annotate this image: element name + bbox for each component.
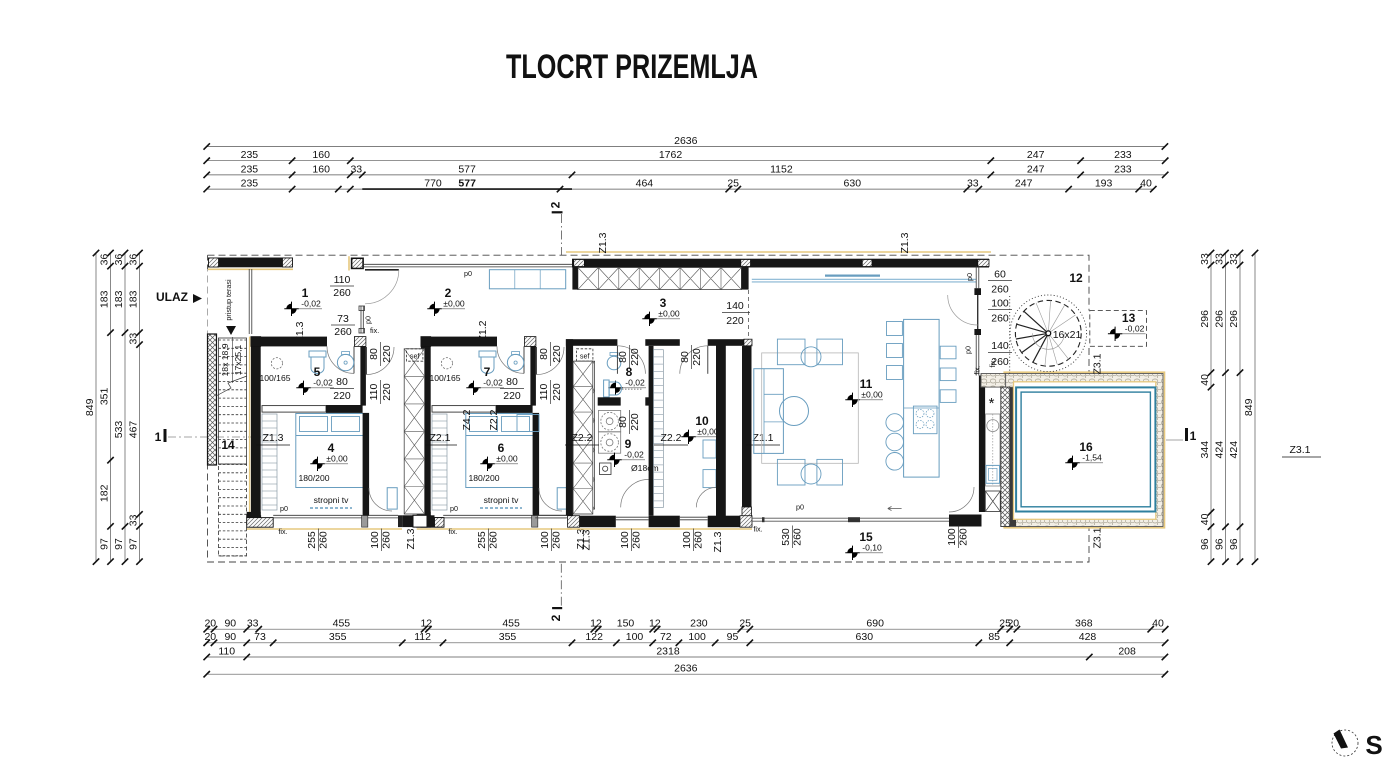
svg-text:80: 80 [617, 351, 629, 363]
svg-text:100/165: 100/165 [259, 373, 290, 383]
svg-text:80: 80 [506, 376, 518, 388]
svg-text:220: 220 [381, 383, 393, 401]
svg-text:110: 110 [538, 383, 550, 400]
svg-text:533: 533 [113, 421, 125, 439]
svg-text:Z1.3: Z1.3 [405, 528, 417, 549]
svg-text:S: S [1365, 730, 1382, 760]
svg-text:577: 577 [458, 163, 476, 175]
svg-text:Z1.1: Z1.1 [752, 432, 773, 444]
svg-text:Z3.1: Z3.1 [1289, 444, 1310, 456]
svg-text:467: 467 [128, 421, 140, 439]
svg-text:stropni tv: stropni tv [314, 495, 350, 505]
svg-text:183: 183 [128, 290, 140, 308]
svg-text:Z1.3: Z1.3 [899, 232, 911, 253]
svg-text:fix.: fix. [973, 365, 982, 374]
svg-text:90: 90 [224, 618, 236, 630]
svg-text:455: 455 [333, 618, 351, 630]
svg-text:140: 140 [726, 300, 744, 312]
svg-text:464: 464 [636, 178, 654, 190]
svg-text:33: 33 [350, 163, 362, 175]
svg-text:12: 12 [590, 618, 602, 630]
svg-text:424: 424 [1214, 441, 1226, 459]
svg-text:72: 72 [660, 631, 672, 643]
svg-text:690: 690 [866, 618, 884, 630]
svg-text:160: 160 [312, 163, 330, 175]
svg-text:95: 95 [727, 631, 739, 643]
svg-text:20: 20 [1007, 618, 1019, 630]
svg-text:100: 100 [369, 531, 381, 549]
svg-text:stropni tv: stropni tv [484, 495, 520, 505]
svg-text:260: 260 [631, 531, 643, 549]
svg-text:36: 36 [99, 254, 111, 266]
svg-text:260: 260 [318, 531, 330, 549]
svg-text:80: 80 [679, 351, 691, 363]
svg-text:-0,02: -0,02 [313, 378, 333, 388]
svg-text:40: 40 [1199, 374, 1211, 386]
svg-text:fix.: fix. [753, 525, 762, 534]
svg-text:100: 100 [626, 631, 644, 643]
svg-text:-0,02: -0,02 [301, 299, 321, 309]
svg-text:112: 112 [414, 631, 431, 643]
svg-text:2: 2 [549, 614, 563, 621]
svg-text:80: 80 [336, 376, 348, 388]
svg-text:100: 100 [991, 298, 1009, 310]
svg-text:20: 20 [204, 631, 216, 643]
svg-text:260: 260 [958, 528, 970, 546]
svg-text:97: 97 [128, 538, 140, 550]
svg-text:12: 12 [420, 618, 432, 630]
svg-text:p0: p0 [464, 269, 472, 278]
svg-text:Z2.2: Z2.2 [660, 432, 681, 444]
svg-text:20: 20 [204, 618, 216, 630]
svg-text:33: 33 [1199, 253, 1211, 265]
svg-text:12: 12 [649, 618, 661, 630]
svg-text:260: 260 [991, 313, 1009, 325]
svg-text:40: 40 [1152, 618, 1164, 630]
svg-text:296: 296 [1199, 310, 1211, 328]
svg-text:344: 344 [1199, 441, 1211, 459]
svg-text:247: 247 [1027, 163, 1045, 175]
svg-text:-0,10: -0,10 [862, 543, 882, 553]
svg-text:33: 33 [1214, 253, 1226, 265]
svg-text:849: 849 [84, 398, 96, 416]
svg-text:260: 260 [333, 287, 351, 299]
svg-text:1762: 1762 [659, 149, 683, 161]
svg-text:220: 220 [551, 383, 563, 401]
svg-text:±0,00: ±0,00 [496, 454, 518, 464]
svg-text:90: 90 [224, 631, 236, 643]
svg-text:12: 12 [1069, 271, 1083, 285]
svg-text:97: 97 [99, 538, 111, 550]
svg-text:530: 530 [780, 528, 792, 546]
svg-text:260: 260 [792, 528, 804, 546]
svg-text:-0,02: -0,02 [624, 450, 644, 460]
svg-text:455: 455 [502, 618, 520, 630]
svg-text:±0,00: ±0,00 [443, 299, 465, 309]
svg-text:235: 235 [241, 178, 259, 190]
svg-text:-1,54: -1,54 [1082, 453, 1102, 463]
svg-text:260: 260 [693, 531, 705, 549]
svg-text:193: 193 [1095, 178, 1113, 190]
svg-text:247: 247 [1015, 178, 1033, 190]
svg-text:p0: p0 [280, 504, 288, 513]
svg-text:296: 296 [1214, 310, 1226, 328]
svg-text:110: 110 [334, 274, 351, 286]
svg-text:220: 220 [629, 413, 641, 431]
svg-text:sef: sef [410, 351, 420, 360]
svg-text:p0: p0 [364, 316, 373, 324]
svg-text:p0: p0 [965, 273, 974, 281]
svg-text:260: 260 [991, 284, 1009, 296]
svg-text:33: 33 [247, 618, 259, 630]
svg-text:233: 233 [1114, 149, 1132, 161]
svg-text:Z2.2: Z2.2 [488, 409, 500, 430]
svg-text:220: 220 [333, 390, 351, 402]
svg-text:Z1.3: Z1.3 [262, 432, 283, 444]
svg-text:577: 577 [458, 178, 476, 190]
svg-text:60: 60 [994, 269, 1006, 281]
svg-text:220: 220 [726, 315, 744, 327]
svg-text:220: 220 [551, 345, 563, 363]
svg-text:110: 110 [218, 645, 235, 657]
svg-text:230: 230 [690, 618, 708, 630]
svg-text:33: 33 [1228, 253, 1240, 265]
svg-text:140: 140 [991, 340, 1009, 352]
svg-text:±0,00: ±0,00 [861, 390, 883, 400]
svg-text:770: 770 [424, 178, 442, 190]
svg-text:182: 182 [99, 484, 111, 502]
svg-text:183: 183 [113, 290, 125, 308]
svg-text:fix.: fix. [988, 358, 997, 367]
svg-text:220: 220 [503, 390, 521, 402]
svg-text:Z3.1: Z3.1 [1092, 527, 1104, 548]
svg-text:18x 18,9: 18x 18,9 [220, 343, 230, 376]
svg-text:150: 150 [617, 618, 635, 630]
svg-text:235: 235 [241, 163, 259, 175]
svg-text:Z1.3: Z1.3 [581, 529, 593, 550]
svg-text:Z1.3: Z1.3 [597, 232, 609, 253]
svg-text:Z3.1: Z3.1 [1092, 353, 1104, 374]
svg-text:±0,00: ±0,00 [697, 427, 719, 437]
svg-text:160: 160 [312, 149, 330, 161]
svg-text:TLOCRT PRIZEMLJA: TLOCRT PRIZEMLJA [506, 48, 758, 86]
svg-text:122: 122 [585, 631, 603, 643]
svg-text:255: 255 [306, 531, 318, 549]
svg-text:Ø18cm: Ø18cm [631, 463, 659, 473]
svg-text:36: 36 [113, 254, 125, 266]
svg-text:±0,00: ±0,00 [658, 309, 680, 319]
svg-text:p0: p0 [964, 346, 973, 354]
svg-text:±0,00: ±0,00 [326, 454, 348, 464]
svg-text:17x25,1: 17x25,1 [233, 344, 243, 375]
svg-text:pristup terasi: pristup terasi [224, 279, 233, 321]
svg-text:p0: p0 [450, 504, 458, 513]
svg-text:255: 255 [476, 531, 488, 549]
svg-text:Z4.2: Z4.2 [461, 409, 473, 430]
svg-text:220: 220 [629, 348, 641, 366]
svg-text:233: 233 [1114, 163, 1132, 175]
svg-text:1: 1 [1190, 429, 1197, 443]
svg-text:100: 100 [681, 531, 693, 549]
svg-text:97: 97 [113, 538, 125, 550]
svg-text:96: 96 [1214, 538, 1226, 550]
svg-text:2318: 2318 [656, 645, 680, 657]
svg-text:260: 260 [551, 531, 563, 549]
svg-text:351: 351 [99, 387, 111, 405]
svg-text:16x21: 16x21 [1053, 329, 1082, 341]
svg-text:sef: sef [580, 351, 590, 360]
svg-text:40: 40 [1199, 513, 1211, 525]
svg-text:-0,02: -0,02 [483, 378, 503, 388]
svg-text:183: 183 [99, 290, 111, 308]
svg-text:2636: 2636 [674, 135, 698, 147]
svg-text:14: 14 [221, 438, 235, 452]
svg-text:25: 25 [727, 178, 739, 190]
svg-text:*: * [989, 395, 995, 412]
svg-text:424: 424 [1228, 441, 1240, 459]
svg-text:355: 355 [499, 631, 517, 643]
svg-text:73: 73 [337, 313, 349, 325]
svg-text:220: 220 [691, 348, 703, 366]
svg-text:96: 96 [1228, 538, 1240, 550]
svg-text:296: 296 [1228, 310, 1240, 328]
svg-text:1152: 1152 [770, 163, 793, 175]
svg-text:110: 110 [368, 383, 380, 400]
svg-text:260: 260 [381, 531, 393, 549]
svg-text:355: 355 [329, 631, 347, 643]
svg-text:Z1.3: Z1.3 [712, 531, 724, 552]
svg-text:368: 368 [1075, 618, 1093, 630]
svg-text:-0,02: -0,02 [1125, 324, 1145, 334]
svg-text:Z2.1: Z2.1 [429, 432, 450, 444]
svg-text:33: 33 [128, 333, 140, 345]
svg-text:33: 33 [967, 178, 979, 190]
svg-text:849: 849 [1243, 398, 1255, 416]
svg-text:100: 100 [688, 631, 706, 643]
svg-text:2: 2 [549, 201, 563, 208]
svg-text:fix.: fix. [278, 527, 287, 536]
svg-text:260: 260 [334, 326, 352, 338]
svg-text:1: 1 [155, 430, 162, 444]
svg-text:100: 100 [539, 531, 551, 549]
svg-text:36: 36 [128, 254, 140, 266]
svg-text:96: 96 [1199, 538, 1211, 550]
svg-text:25: 25 [739, 618, 751, 630]
svg-text:ULAZ: ULAZ [156, 290, 188, 304]
svg-text:220: 220 [381, 345, 393, 363]
svg-text:73: 73 [254, 631, 266, 643]
svg-text:260: 260 [488, 531, 500, 549]
svg-text:p0: p0 [796, 503, 804, 512]
svg-text:80: 80 [368, 348, 380, 360]
svg-text:40: 40 [1140, 178, 1152, 190]
svg-text:85: 85 [988, 631, 1000, 643]
svg-text:80: 80 [538, 348, 550, 360]
svg-text:Z2.2: Z2.2 [571, 432, 592, 444]
svg-text:630: 630 [856, 631, 874, 643]
svg-text:100/165: 100/165 [429, 373, 460, 383]
svg-text:180/200: 180/200 [298, 473, 329, 483]
svg-text:100: 100 [619, 531, 631, 549]
svg-text:208: 208 [1118, 645, 1136, 657]
svg-text:100: 100 [946, 528, 958, 546]
svg-text:-0,02: -0,02 [625, 378, 645, 388]
svg-text:428: 428 [1079, 631, 1097, 643]
svg-text:2636: 2636 [674, 663, 698, 675]
svg-text:fix.: fix. [448, 527, 457, 536]
svg-text:630: 630 [844, 178, 862, 190]
svg-text:247: 247 [1027, 149, 1045, 161]
svg-text:180/200: 180/200 [468, 473, 499, 483]
svg-text:235: 235 [241, 149, 259, 161]
svg-text:80: 80 [617, 416, 629, 428]
svg-text:fix.: fix. [370, 326, 379, 335]
svg-text:33: 33 [128, 514, 140, 526]
